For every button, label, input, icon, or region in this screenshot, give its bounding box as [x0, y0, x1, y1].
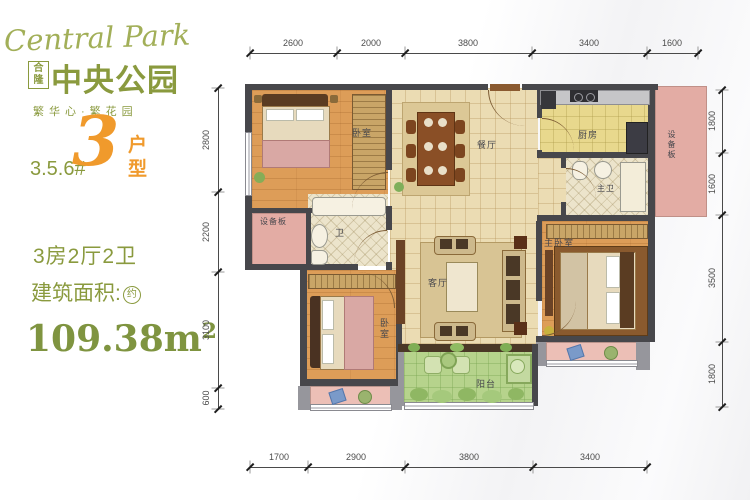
kitchen-appliance-icon	[626, 122, 648, 154]
dim-left-1: 2200	[201, 222, 211, 242]
table-icon	[440, 352, 457, 369]
dim-left-2: 3100	[201, 320, 211, 340]
dim-left-0: 2800	[201, 130, 211, 150]
dim-top-4: 1600	[662, 38, 682, 48]
area-approx-badge: 约	[123, 286, 141, 304]
dim-top-2: 3800	[458, 38, 478, 48]
dim-bottom-2: 3800	[459, 452, 479, 462]
brand-script-logo: Central Park	[3, 16, 234, 58]
room-label-equipment-left: 设备板	[260, 216, 287, 227]
room-label-kitchen: 厨房	[578, 128, 598, 141]
dim-right-2: 3500	[707, 268, 717, 288]
area-label: 建筑面积:	[31, 282, 121, 305]
room-label-balcony: 阳台	[476, 377, 496, 390]
plant-icon	[254, 172, 265, 183]
shower-icon	[620, 162, 646, 212]
toilet-icon	[311, 250, 328, 265]
dim-top-1: 2000	[361, 38, 381, 48]
dim-top-0: 2600	[283, 38, 303, 48]
plate-icon	[604, 346, 618, 360]
dim-right-3: 1800	[707, 364, 717, 384]
dim-right-0: 1800	[707, 111, 717, 131]
dining-table-icon	[417, 112, 455, 186]
dim-left-3: 600	[201, 390, 211, 405]
equipment-right-room	[655, 86, 707, 217]
unit-type-suffix: 户型	[128, 134, 149, 182]
tv-cabinet-icon	[396, 240, 405, 324]
room-label-living: 客厅	[428, 276, 448, 289]
room-label-equipment-right: 设备板	[666, 130, 677, 160]
sink-icon	[311, 224, 328, 248]
room-label-bath: 卫	[335, 226, 345, 239]
room-label-master-bath: 主卫	[597, 183, 615, 194]
room-label-bedroom-top: 卧室	[352, 126, 372, 139]
brand-prefix: 合隆	[28, 61, 49, 89]
plate-icon	[358, 390, 372, 404]
plant-icon	[394, 182, 404, 192]
dim-right-1: 1600	[707, 174, 717, 194]
unit-layout: 3房2厅2卫	[33, 240, 137, 270]
room-label-master-bedroom: 主卧室	[544, 236, 574, 249]
brand-name: 中央公园	[51, 55, 179, 100]
coffee-table-icon	[446, 262, 478, 312]
dim-bottom-0: 1700	[269, 452, 289, 462]
dim-bottom-3: 3400	[580, 452, 600, 462]
area-value: 109.38m	[26, 318, 202, 360]
sink-icon	[594, 161, 612, 179]
dim-top-3: 3400	[579, 38, 599, 48]
fridge-icon	[541, 91, 556, 109]
dim-bottom-1: 2900	[346, 452, 366, 462]
room-label-bedroom-bottom: 卧室	[378, 318, 391, 340]
unit-number: 3	[72, 108, 119, 176]
floorplan-flyer: Central Park 合隆 中央公园 繁华心·繁花园 3.5.6# 3 户型…	[0, 0, 750, 500]
room-label-dining: 餐厅	[477, 138, 497, 151]
